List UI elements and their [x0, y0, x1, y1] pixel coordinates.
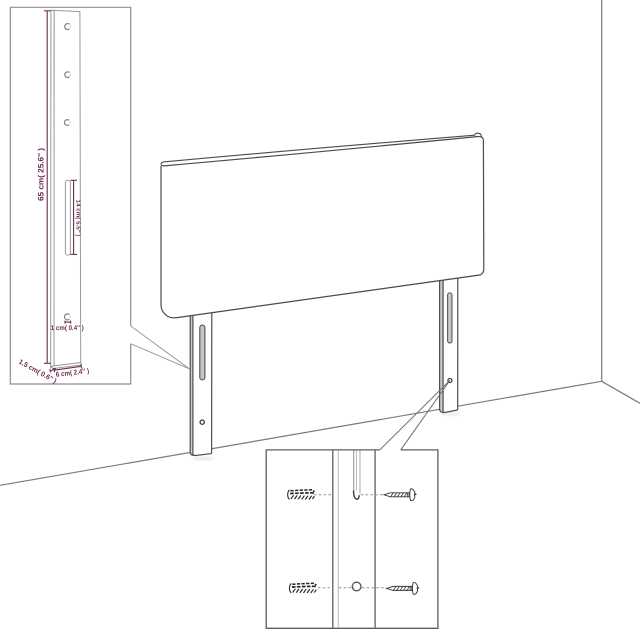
svg-text:1 cm( 0.4'' ): 1 cm( 0.4'' ): [51, 325, 84, 332]
svg-text:14 cm( 5.5'' ): 14 cm( 5.5'' ): [75, 200, 82, 237]
svg-text:65 cm( 25.6'' ): 65 cm( 25.6'' ): [36, 148, 45, 201]
